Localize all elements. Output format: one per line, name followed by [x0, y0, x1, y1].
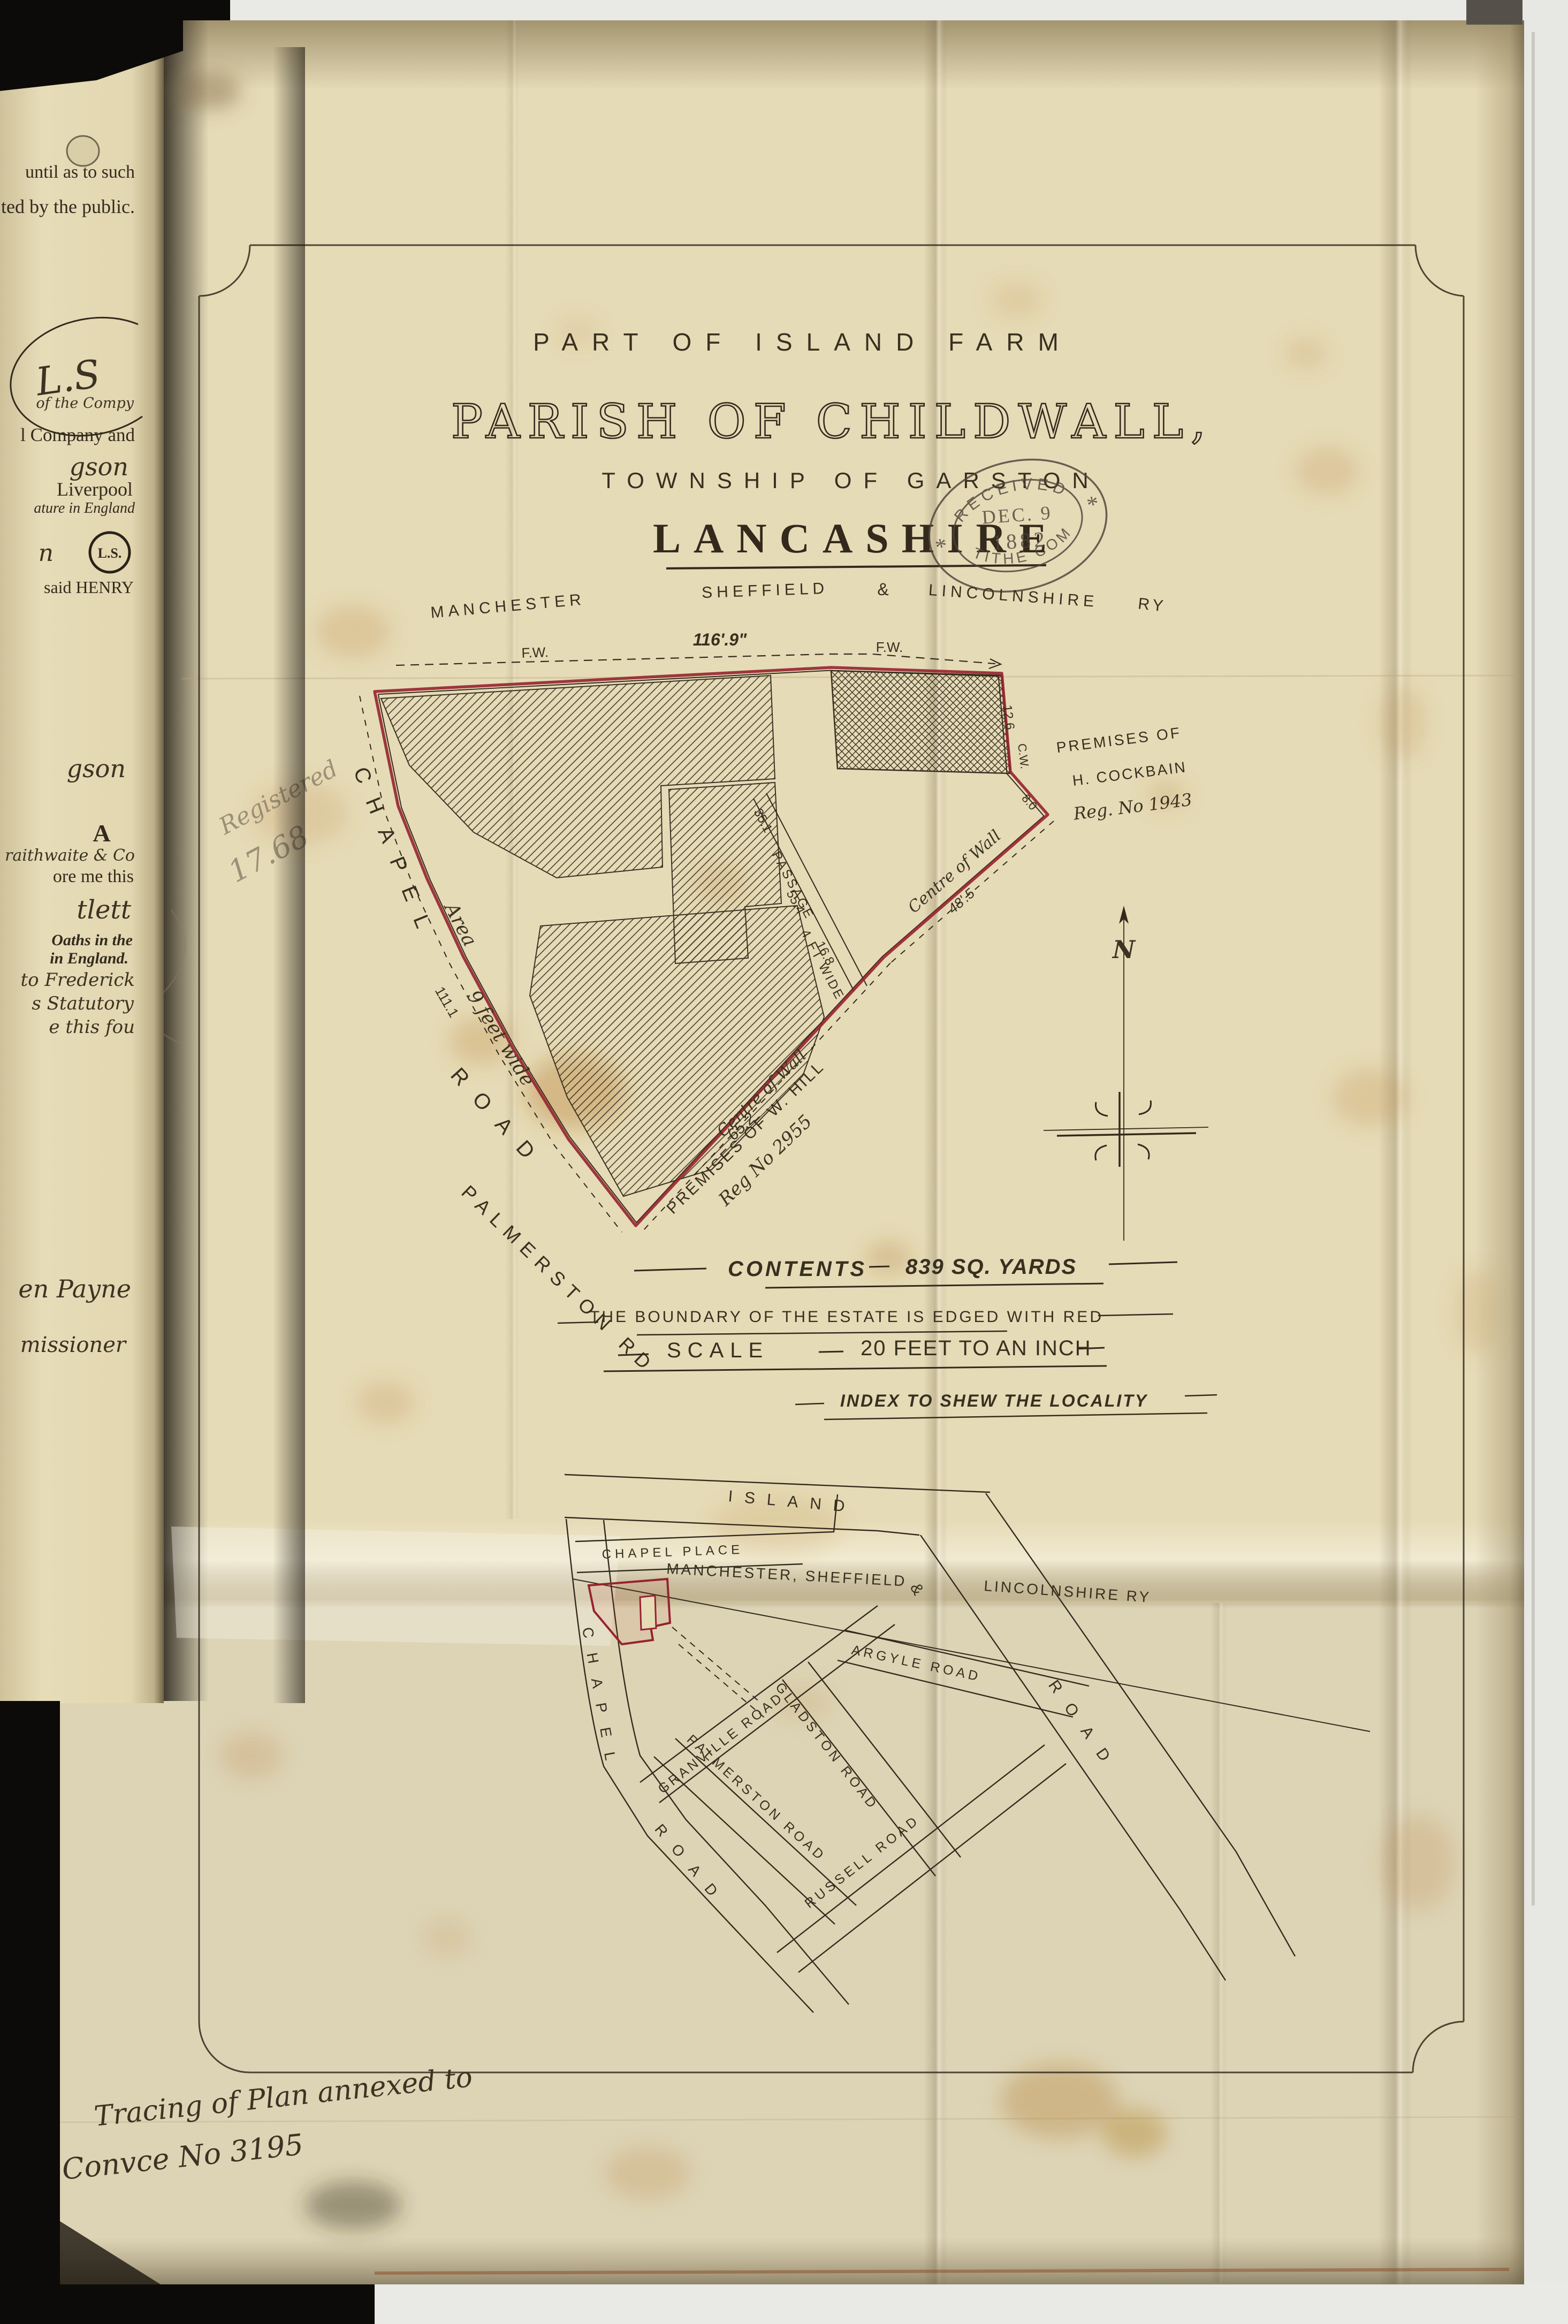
railway-ampersand: &	[877, 580, 888, 599]
dim-12-6: 12.6	[1000, 704, 1017, 731]
index-title: INDEX TO SHEW THE LOCALITY	[840, 1391, 1148, 1410]
title-line-1: PART OF ISLAND FARM	[533, 328, 1072, 356]
page-fragment: e this fou	[49, 1016, 135, 1038]
backdrop-right	[1523, 0, 1568, 2324]
page-fragment: s Statutory	[32, 993, 134, 1014]
top-dimension: 116'.9"	[693, 630, 747, 649]
page-fragment: missioner	[20, 1333, 127, 1357]
page-fragment: Liverpool	[57, 479, 133, 500]
contents-label: CONTENTS	[728, 1257, 867, 1281]
title-line-2: PARISH OF CHILDWALL,	[451, 394, 1213, 449]
page-fragment: gson	[67, 754, 126, 783]
cockbain-building	[831, 671, 1010, 773]
page-fragment: of the Compy	[36, 395, 134, 412]
page-fragment: tlett	[77, 895, 131, 925]
contents-value: 839 SQ. YARDS	[905, 1255, 1077, 1279]
scanned-map-document: PART OF ISLAND FARM PARISH OF CHILDWALL,…	[0, 0, 1568, 2324]
page-fragment: said HENRY	[44, 578, 134, 597]
page-fragment: ted by the public.	[1, 196, 135, 217]
ls-seal-text: L.S.	[98, 545, 122, 561]
page-fragment: to Frederick	[20, 969, 135, 991]
page-tear-hole	[67, 136, 99, 166]
fw-right-label: F.W.	[876, 639, 903, 655]
map-artwork: PART OF ISLAND FARM PARISH OF CHILDWALL,…	[0, 0, 1568, 2324]
page-fragment: l Company and	[20, 424, 135, 445]
scale-label: SCALE	[667, 1339, 769, 1362]
backdrop-bottom	[375, 2281, 1568, 2324]
page-fragment: Oaths in the	[51, 931, 133, 949]
page-fragment: A	[93, 819, 110, 847]
railway-word-ry: RY	[1137, 595, 1167, 615]
page-fragment: ore me this	[53, 867, 134, 886]
stamp-date-line2: 1882	[992, 527, 1049, 555]
page-fragment: gson	[70, 452, 128, 481]
north-mark: N	[1112, 935, 1136, 964]
page-fragment: ature in England	[34, 500, 135, 517]
page-fragment: until as to such	[25, 162, 135, 182]
page-fragment: n	[39, 540, 54, 567]
fw-left-label: F.W.	[521, 644, 549, 661]
cockbain-premises-label: PREMISES OF H. COCKBAIN Reg. No 1943	[1055, 724, 1193, 824]
page-fragment: in England.	[50, 950, 128, 967]
scale-value: 20 FEET TO AN INCH	[861, 1336, 1092, 1360]
boundary-note: THE BOUNDARY OF THE ESTATE IS EDGED WITH…	[590, 1308, 1103, 1326]
page-fragment: en Payne	[18, 1274, 131, 1303]
page-fragment: raithwaite & Co	[5, 846, 135, 865]
backdrop-streak	[1532, 32, 1535, 1905]
